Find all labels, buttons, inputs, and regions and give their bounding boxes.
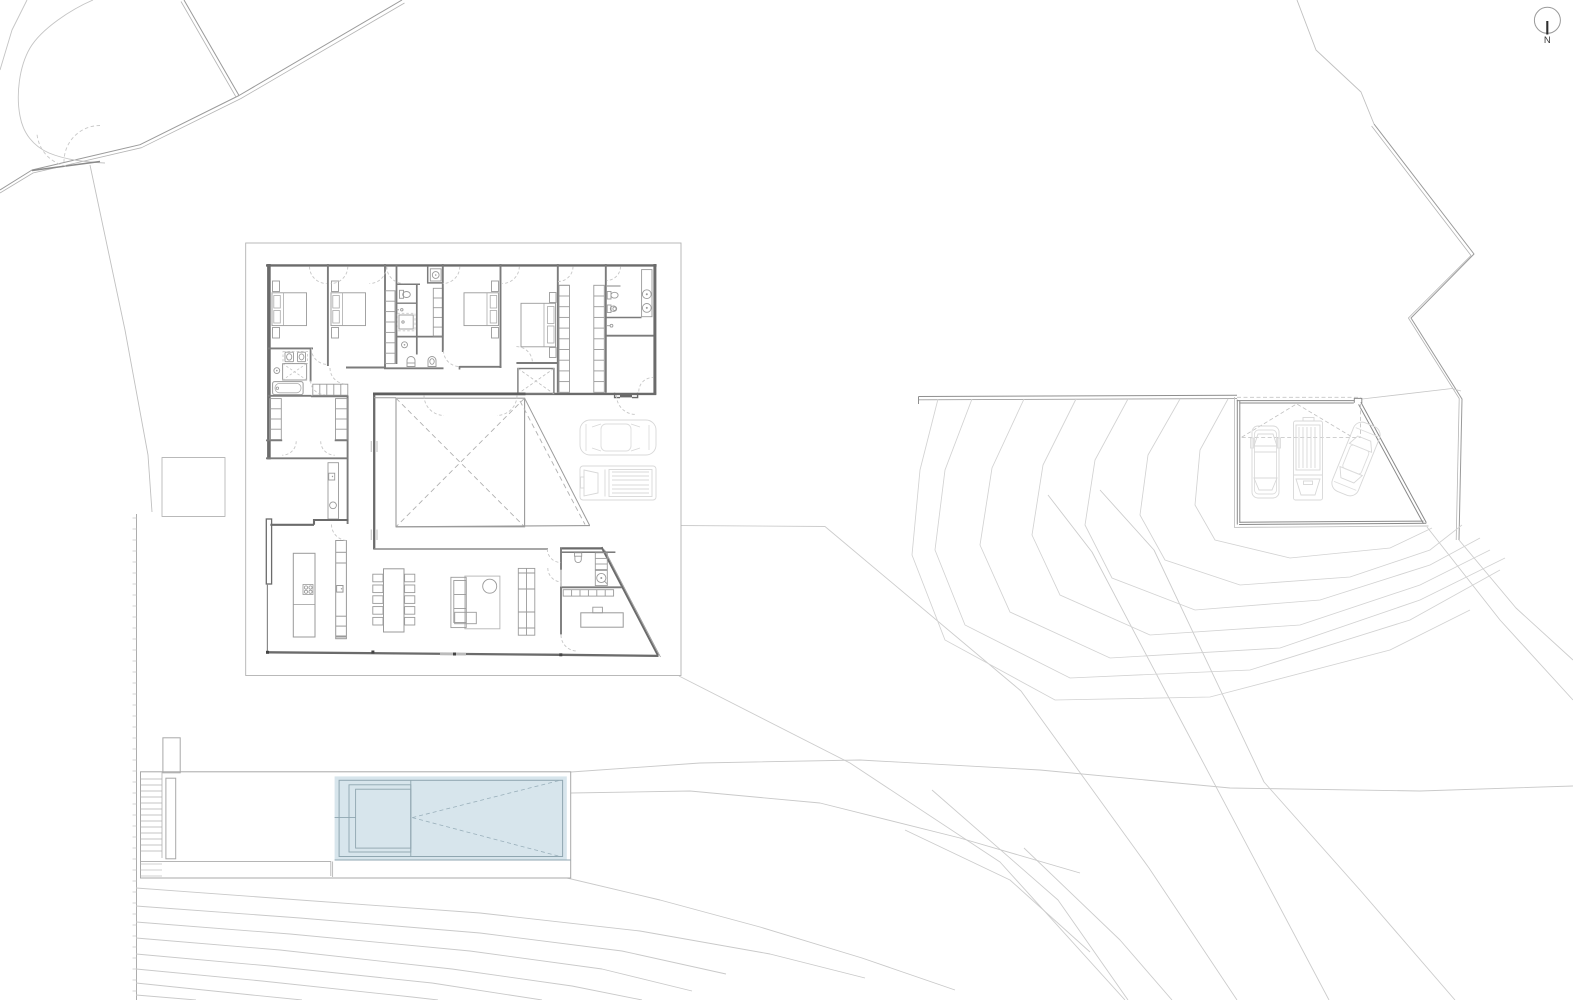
svg-text:N: N (1544, 35, 1551, 46)
